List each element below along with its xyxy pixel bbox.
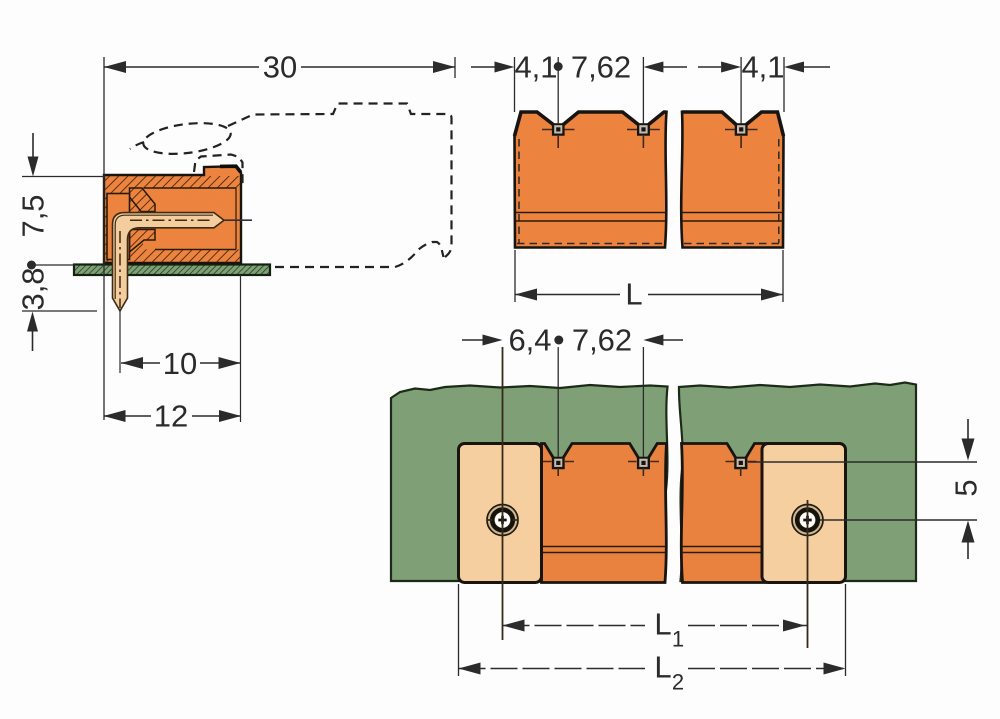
svg-text:4,1: 4,1 (741, 50, 784, 85)
svg-text:7,5: 7,5 (16, 194, 51, 237)
svg-text:L: L (654, 650, 671, 685)
svg-text:1: 1 (672, 627, 684, 652)
svg-text:5: 5 (949, 479, 984, 496)
svg-text:4,1: 4,1 (514, 50, 557, 85)
svg-text:L: L (654, 607, 671, 642)
svg-text:10: 10 (163, 346, 197, 381)
svg-text:30: 30 (263, 50, 297, 85)
svg-text:7,62: 7,62 (571, 50, 631, 85)
svg-text:2: 2 (672, 670, 684, 695)
svg-text:3,8: 3,8 (16, 267, 51, 310)
svg-text:L: L (625, 277, 642, 312)
svg-text:7,62: 7,62 (572, 323, 632, 358)
svg-text:12: 12 (154, 399, 188, 434)
svg-text:6,4: 6,4 (508, 323, 551, 358)
